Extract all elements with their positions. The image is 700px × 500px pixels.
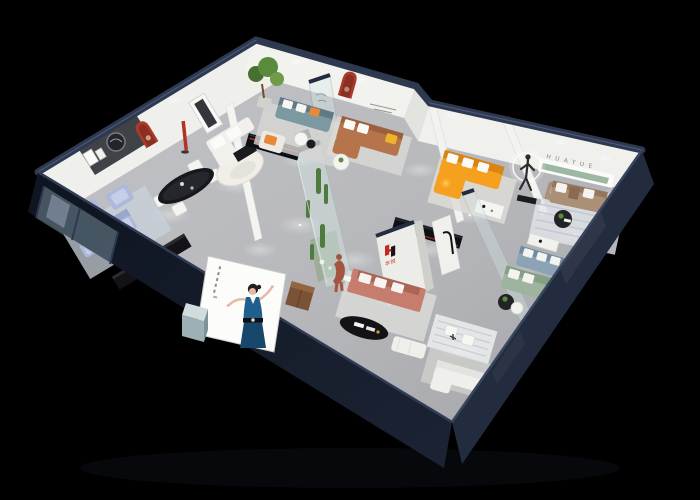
side-table-plant (333, 154, 349, 170)
round-wall-art (107, 133, 125, 151)
billboard-screen (196, 256, 286, 352)
ground-shadow (80, 448, 620, 488)
huayue-coffee-table (554, 210, 572, 228)
showroom-svg: HUAYUE (0, 0, 700, 500)
round-table-black (307, 140, 316, 149)
showroom-render: HUAYUE (0, 0, 700, 500)
pedestal-cube (182, 303, 208, 342)
round-table-white (295, 133, 308, 146)
